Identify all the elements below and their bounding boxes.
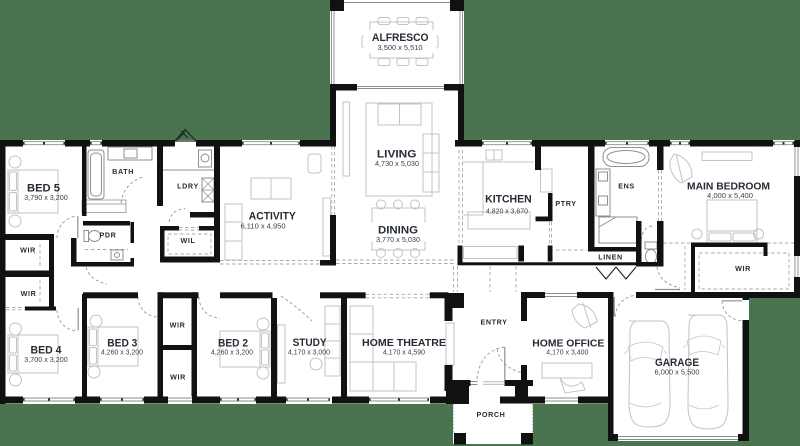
svg-text:6,000 x 5,500: 6,000 x 5,500 bbox=[655, 368, 700, 377]
svg-text:4,260 x 3,200: 4,260 x 3,200 bbox=[101, 348, 143, 357]
svg-text:4,260 x 3,200: 4,260 x 3,200 bbox=[211, 348, 253, 357]
svg-text:4,820 x 3,670: 4,820 x 3,670 bbox=[486, 207, 528, 216]
svg-text:ACTIVITY: ACTIVITY bbox=[249, 210, 297, 222]
svg-text:WIR: WIR bbox=[170, 373, 186, 382]
svg-text:WIL: WIL bbox=[181, 236, 196, 245]
svg-text:ENTRY: ENTRY bbox=[480, 318, 507, 327]
svg-text:3,770 x 5,030: 3,770 x 5,030 bbox=[376, 235, 420, 244]
svg-text:WIR: WIR bbox=[21, 289, 37, 298]
svg-text:LINEN: LINEN bbox=[598, 253, 623, 262]
svg-text:4,730 x 5,030: 4,730 x 5,030 bbox=[375, 159, 419, 168]
svg-text:PDR: PDR bbox=[100, 231, 117, 240]
svg-text:ENS: ENS bbox=[618, 182, 635, 191]
svg-text:4,170 x 3,400: 4,170 x 3,400 bbox=[546, 348, 588, 357]
svg-text:WIR: WIR bbox=[170, 321, 186, 330]
svg-text:WIR: WIR bbox=[20, 246, 36, 255]
svg-text:3,700 x 3,200: 3,700 x 3,200 bbox=[24, 355, 68, 364]
svg-text:3,790 x 3,200: 3,790 x 3,200 bbox=[24, 193, 68, 202]
svg-text:PTRY: PTRY bbox=[555, 199, 576, 208]
svg-text:4,170 x 4,590: 4,170 x 4,590 bbox=[383, 348, 425, 357]
svg-text:KITCHEN: KITCHEN bbox=[485, 194, 532, 206]
svg-text:BATH: BATH bbox=[112, 167, 134, 176]
svg-text:WIR: WIR bbox=[735, 264, 751, 273]
svg-text:3,500 x 5,510: 3,500 x 5,510 bbox=[378, 43, 423, 52]
svg-text:4,170 x 3,000: 4,170 x 3,000 bbox=[288, 348, 330, 357]
svg-text:4,000 x 5,400: 4,000 x 5,400 bbox=[707, 191, 753, 200]
svg-text:6,110 x 4,950: 6,110 x 4,950 bbox=[241, 222, 286, 231]
svg-text:LDRY: LDRY bbox=[177, 182, 199, 191]
svg-text:PORCH: PORCH bbox=[477, 410, 506, 419]
